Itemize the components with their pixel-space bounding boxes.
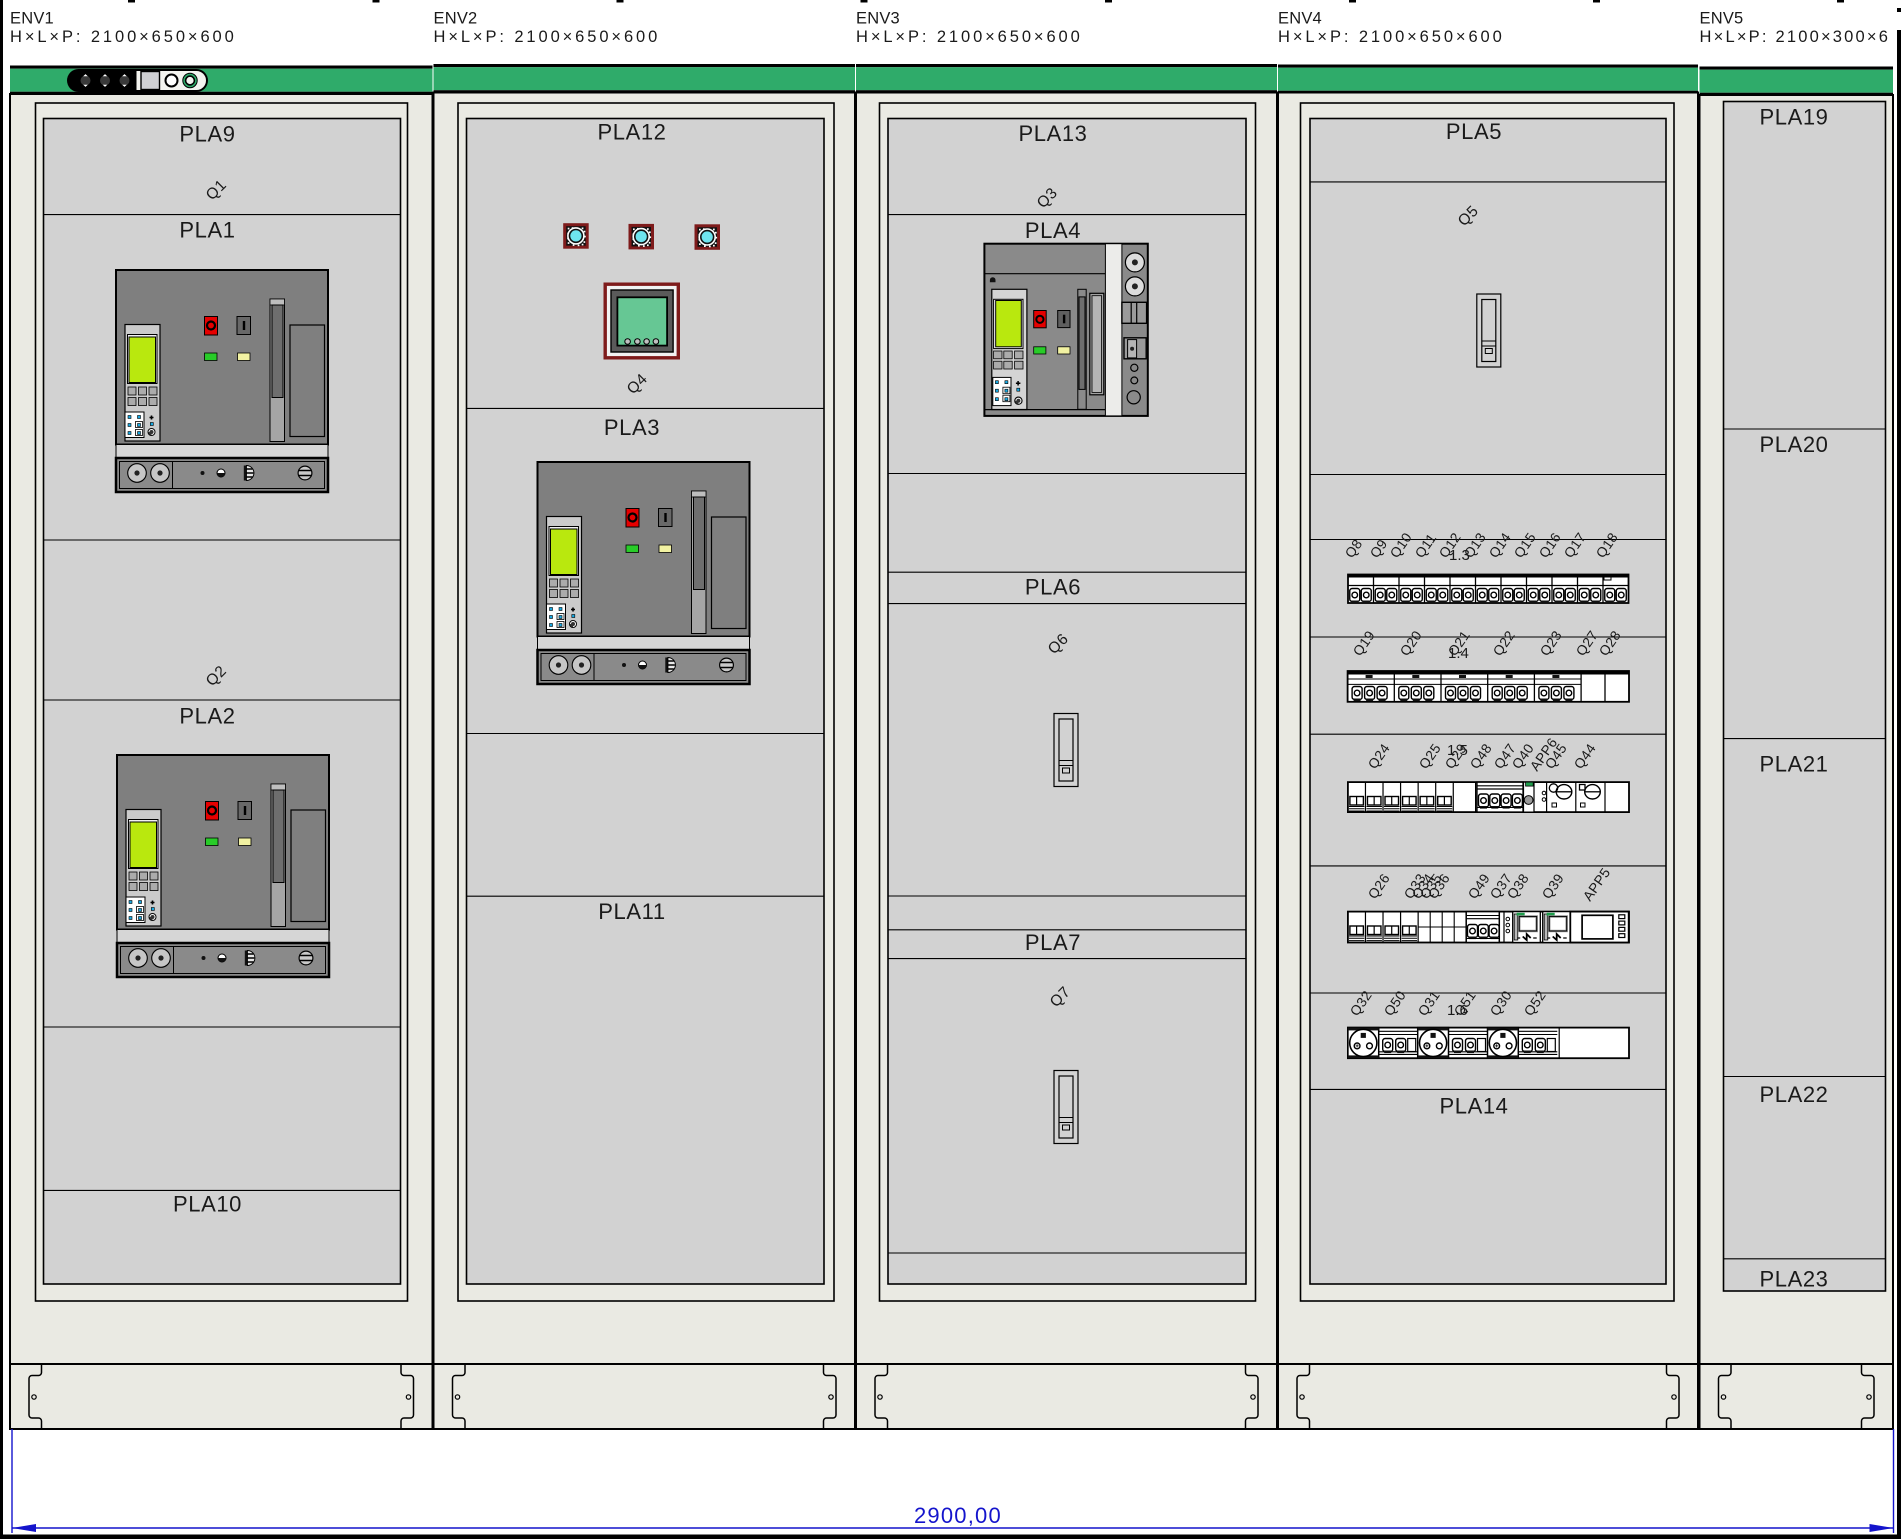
svg-text:ENV5: ENV5 — [1700, 10, 1744, 28]
svg-text:H×L×P: 2100×650×600: H×L×P: 2100×650×600 — [1278, 28, 1505, 46]
svg-text:PLA21: PLA21 — [1759, 752, 1828, 777]
svg-text:PLA5: PLA5 — [1446, 119, 1502, 144]
svg-text:H×L×P: 2100×650×600: H×L×P: 2100×650×600 — [856, 28, 1083, 46]
svg-text:PLA7: PLA7 — [1025, 930, 1081, 955]
svg-text:PLA10: PLA10 — [173, 1192, 242, 1217]
svg-text:1.5: 1.5 — [1447, 742, 1468, 759]
svg-text:PLA23: PLA23 — [1759, 1267, 1828, 1292]
svg-text:H×L×P: 2100×650×600: H×L×P: 2100×650×600 — [10, 28, 237, 46]
svg-text:PLA9: PLA9 — [179, 122, 235, 147]
svg-text:PLA13: PLA13 — [1018, 121, 1087, 146]
svg-text:PLA22: PLA22 — [1759, 1082, 1828, 1107]
svg-text:1.4: 1.4 — [1448, 645, 1469, 662]
svg-text:H×L×P: 2100×650×600: H×L×P: 2100×650×600 — [434, 28, 661, 46]
svg-text:ENV2: ENV2 — [434, 10, 478, 28]
svg-text:PLA19: PLA19 — [1759, 104, 1828, 129]
svg-text:2900,00: 2900,00 — [914, 1503, 1002, 1528]
svg-text:PLA4: PLA4 — [1025, 218, 1081, 243]
svg-text:PLA6: PLA6 — [1025, 575, 1081, 600]
svg-text:ENV3: ENV3 — [856, 10, 900, 28]
svg-text:PLA3: PLA3 — [604, 415, 660, 440]
svg-text:1.3: 1.3 — [1449, 547, 1470, 564]
svg-text:H×L×P: 2100×300×6: H×L×P: 2100×300×6 — [1700, 28, 1891, 46]
svg-text:PLA12: PLA12 — [597, 120, 666, 145]
svg-text:ENV4: ENV4 — [1278, 10, 1322, 28]
svg-text:1.6: 1.6 — [1447, 1002, 1468, 1019]
svg-text:ENV1: ENV1 — [10, 10, 54, 28]
svg-text:PLA11: PLA11 — [598, 899, 665, 924]
svg-text:PLA1: PLA1 — [179, 218, 235, 243]
svg-text:PLA2: PLA2 — [179, 704, 235, 729]
svg-text:PLA14: PLA14 — [1439, 1094, 1508, 1119]
svg-text:PLA20: PLA20 — [1759, 432, 1828, 457]
